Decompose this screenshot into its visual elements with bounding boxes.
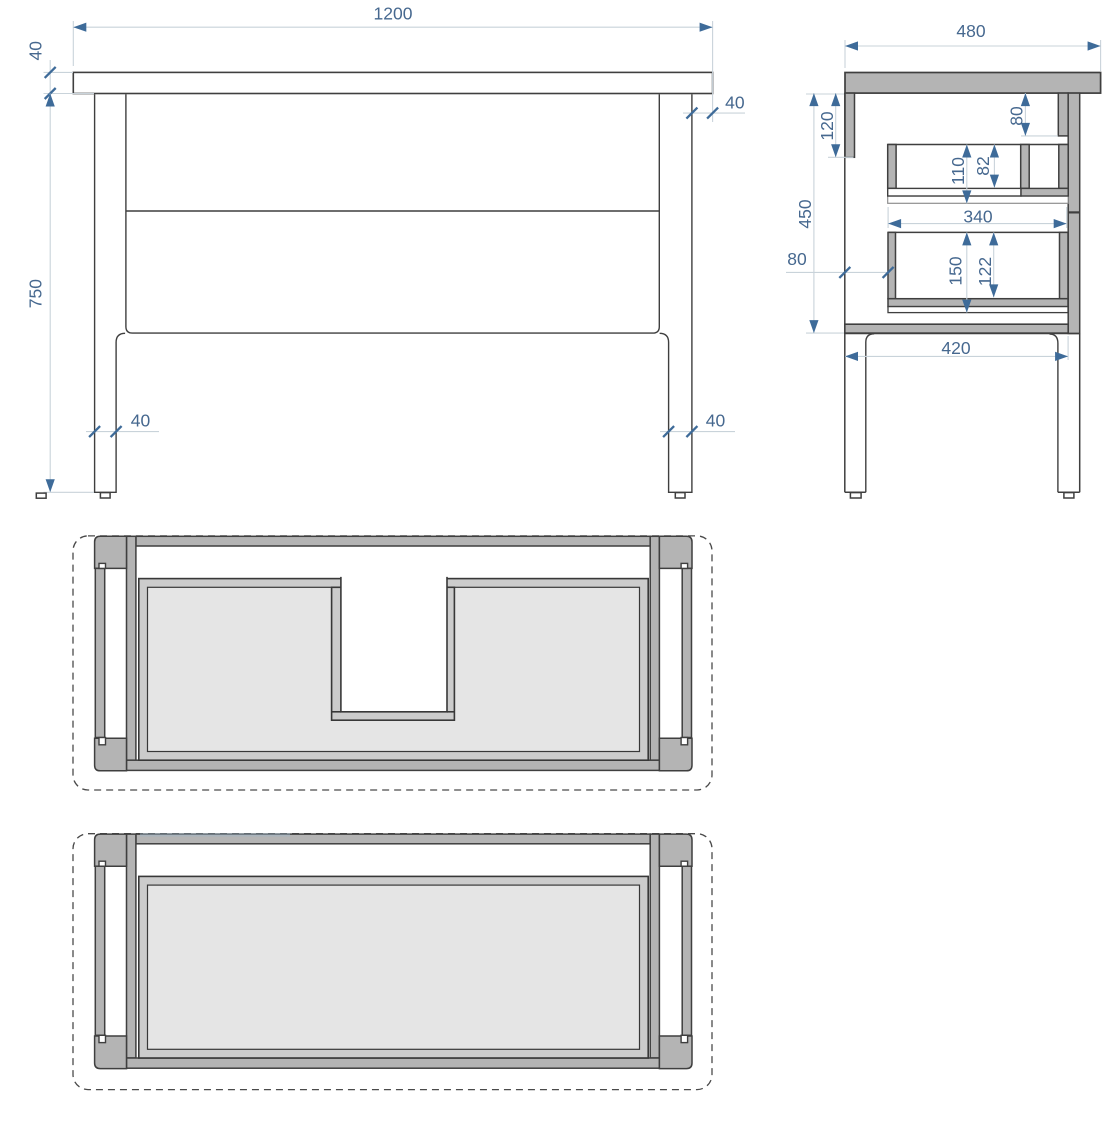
svg-text:110: 110 [948,157,968,185]
svg-text:40: 40 [131,410,151,430]
svg-text:450: 450 [795,199,815,228]
svg-text:80: 80 [1007,106,1027,126]
svg-text:82: 82 [973,156,993,175]
svg-text:340: 340 [963,207,992,227]
svg-text:150: 150 [946,256,966,285]
svg-text:480: 480 [956,21,985,41]
svg-text:80: 80 [787,249,807,269]
svg-text:420: 420 [941,338,970,358]
svg-text:120: 120 [817,111,837,140]
svg-text:1200: 1200 [374,4,413,24]
svg-text:122: 122 [975,257,995,286]
svg-text:40: 40 [25,41,45,61]
svg-text:40: 40 [706,410,726,430]
svg-text:750: 750 [25,279,45,308]
svg-text:40: 40 [725,93,745,113]
